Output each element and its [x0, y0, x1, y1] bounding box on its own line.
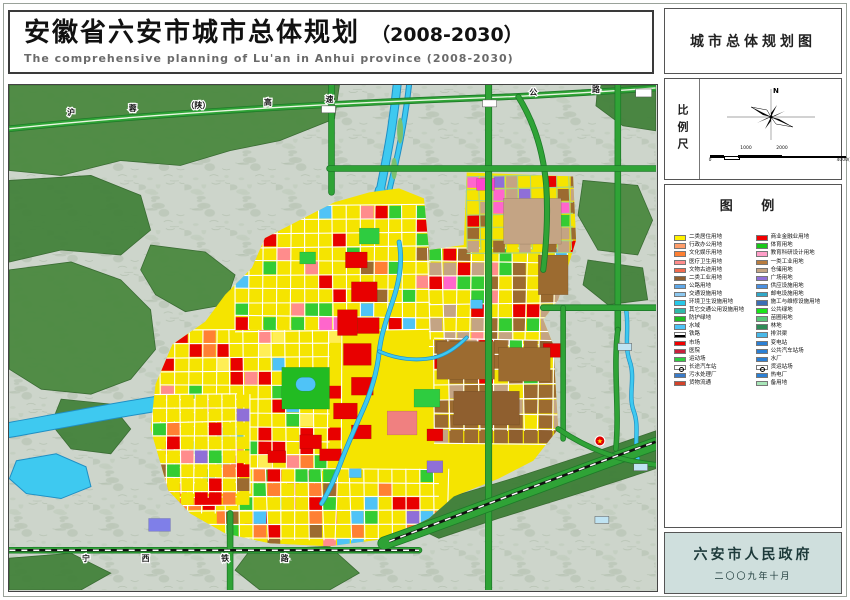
- legend-label: 长途汽车站: [689, 365, 717, 371]
- map-title: 城市总体规划图: [690, 31, 816, 51]
- legend-swatch: [674, 268, 686, 274]
- legend-swatch: [756, 341, 768, 347]
- legend-swatch: [674, 341, 686, 347]
- legend-item: 运动场: [674, 355, 752, 363]
- legend-label: 体育用地: [771, 243, 793, 249]
- road-label: 沪: [67, 107, 75, 117]
- legend-label: 公路用地: [689, 284, 711, 290]
- legend-swatch: [674, 260, 686, 266]
- road-label: 路: [592, 85, 601, 94]
- road-label: 宁: [82, 553, 90, 563]
- legend-label: 供应设施用地: [771, 284, 804, 290]
- legend-label: 公共汽车站场: [771, 349, 804, 355]
- legend-label: 公共绿地: [771, 308, 793, 314]
- legend-item: 二类工业用地: [674, 274, 752, 282]
- legend-label: 施工与维修设施用地: [771, 300, 821, 306]
- footer-org: 六安市人民政府: [694, 544, 813, 564]
- legend-item: 行政办公用地: [674, 242, 752, 250]
- legend-label: 水厂: [771, 357, 782, 363]
- legend-swatch: [674, 251, 686, 257]
- legend-swatch: [756, 251, 768, 257]
- legend-swatch: [756, 292, 768, 298]
- legend-swatch: [756, 324, 768, 330]
- legend-item: 商业金融业用地: [756, 234, 834, 242]
- legend-label: 运动场: [689, 357, 706, 363]
- legend-label: 行政办公用地: [689, 243, 722, 249]
- road-label: 蓉: [129, 103, 137, 113]
- legend-swatch: [756, 243, 768, 249]
- legend-label: 排洪渠: [771, 332, 788, 338]
- legend-item: 公路用地: [674, 283, 752, 291]
- sidebar: 城市总体规划图 比例尺: [664, 8, 842, 592]
- road-label: 路: [281, 553, 290, 563]
- legend-item: 医疗卫生用地: [674, 258, 752, 266]
- road-label: 西: [142, 554, 150, 563]
- legend-swatch: [674, 308, 686, 314]
- legend-swatch: [674, 243, 686, 249]
- legend-swatch: [674, 316, 686, 322]
- legend-swatch: [756, 365, 768, 371]
- legend-swatch: [756, 260, 768, 266]
- scale-tick: 1000: [740, 146, 751, 151]
- legend-item: 体育用地: [756, 242, 834, 250]
- legend-item: 其它交通公用设施用地: [674, 307, 752, 315]
- map-canvas: ★沪蓉（陕）高速公路宁西铁路: [9, 85, 656, 590]
- legend-label: 教育科研设计用地: [771, 251, 815, 257]
- scale-tick: 4000(M): [837, 158, 850, 163]
- legend-label: 医疗卫生用地: [689, 260, 722, 266]
- legend-label: 备用地: [771, 381, 788, 387]
- legend-label: 二类居住用地: [689, 235, 722, 241]
- legend-label: 文化娱乐用地: [689, 251, 722, 257]
- legend-swatch: [674, 284, 686, 290]
- legend-label: 商业金融业用地: [771, 235, 810, 241]
- scale-tick: 2000: [776, 146, 787, 151]
- title-zh-text: 安徽省六安市城市总体规划: [24, 18, 360, 48]
- legend-item: 市场: [674, 339, 752, 347]
- road-label: （陕）: [186, 100, 210, 110]
- legend-column-right: 商业金融业用地体育用地教育科研设计用地一类工业用地仓储用地广场用地供应设施用地邮…: [756, 234, 834, 388]
- legend-item: 水厂: [756, 355, 834, 363]
- legend-item: 货物流通: [674, 380, 752, 388]
- legend-swatch: [756, 284, 768, 290]
- legend-item: 交通设施用地: [674, 291, 752, 299]
- legend-label: 铁路: [689, 332, 700, 338]
- page: 安徽省六安市城市总体规划 （2008-2030） The comprehensi…: [0, 0, 850, 600]
- legend-swatch: [756, 349, 768, 355]
- legend-label: 其它交通公用设施用地: [689, 308, 744, 314]
- legend-item: 施工与维修设施用地: [756, 299, 834, 307]
- legend-columns: 二类居住用地行政办公用地文化娱乐用地医疗卫生用地文物古迹用地二类工业用地公路用地…: [665, 214, 841, 388]
- legend-swatch: [756, 316, 768, 322]
- legend-item: 货运站场: [756, 364, 834, 372]
- legend-label: 环境卫生设施用地: [689, 300, 733, 306]
- legend-swatch: [674, 276, 686, 282]
- legend-label: 交通设施用地: [689, 292, 722, 298]
- legend-item: 医院: [674, 347, 752, 355]
- legend-item: 一类工业用地: [756, 258, 834, 266]
- legend-label: 二类工业用地: [689, 276, 722, 282]
- legend-swatch: [674, 381, 686, 387]
- legend-item: 文物古迹用地: [674, 266, 752, 274]
- scale-body: N 0100020004000(M): [700, 79, 841, 179]
- legend-item: 公共绿地: [756, 307, 834, 315]
- legend-item: 二类居住用地: [674, 234, 752, 242]
- legend-swatch: [674, 292, 686, 298]
- legend-item: 污水处理厂: [674, 372, 752, 380]
- legend-swatch: [756, 276, 768, 282]
- legend-swatch: [756, 235, 768, 241]
- legend-label: 变电站: [771, 341, 788, 347]
- legend-swatch: [674, 365, 686, 371]
- legend-label: 货物流通: [689, 381, 711, 387]
- legend-swatch: [756, 300, 768, 306]
- legend-swatch: [756, 268, 768, 274]
- svg-text:★: ★: [597, 437, 603, 445]
- legend-label: 防护绿地: [689, 316, 711, 322]
- legend-label: 一类工业用地: [771, 260, 804, 266]
- legend-swatch: [756, 381, 768, 387]
- legend-item: 防护绿地: [674, 315, 752, 323]
- compass-rose: N: [725, 85, 817, 145]
- legend-swatch: [674, 300, 686, 306]
- legend-label: 邮电设施用地: [771, 292, 804, 298]
- title-year: （2008-2030）: [371, 24, 523, 46]
- legend-swatch: [674, 373, 686, 379]
- legend-item: 排洪渠: [756, 331, 834, 339]
- legend-swatch: [674, 235, 686, 241]
- legend-item: 供应设施用地: [756, 283, 834, 291]
- legend-label: 苗圃用地: [771, 316, 793, 322]
- legend-item: 铁路: [674, 331, 752, 339]
- legend-item: 公共汽车站场: [756, 347, 834, 355]
- footer-date: 二〇〇九年十月: [714, 569, 791, 582]
- legend-label: 广场用地: [771, 276, 793, 282]
- city-marker: ★: [595, 436, 605, 446]
- legend-item: 教育科研设计用地: [756, 250, 834, 258]
- footer-box: 六安市人民政府 二〇〇九年十月: [664, 532, 842, 594]
- page-title: 安徽省六安市城市总体规划 （2008-2030）: [24, 18, 642, 50]
- legend-swatch: [674, 324, 686, 330]
- scale-tick: 0: [709, 158, 712, 163]
- legend-label: 市场: [689, 341, 700, 347]
- legend-swatch: [756, 373, 768, 379]
- legend-swatch: [756, 357, 768, 363]
- legend-item: 备用地: [756, 380, 834, 388]
- legend-label: 水域: [689, 324, 700, 330]
- legend-label: 医院: [689, 349, 700, 355]
- legend-item: 长途汽车站: [674, 364, 752, 372]
- scale-bar: 0100020004000(M): [710, 147, 833, 163]
- legend-item: 邮电设施用地: [756, 291, 834, 299]
- title-block: 安徽省六安市城市总体规划 （2008-2030） The comprehensi…: [8, 10, 654, 74]
- legend-column-left: 二类居住用地行政办公用地文化娱乐用地医疗卫生用地文物古迹用地二类工业用地公路用地…: [674, 234, 752, 388]
- road-label: 铁: [221, 553, 229, 563]
- legend-item: 环境卫生设施用地: [674, 299, 752, 307]
- legend-label: 文物古迹用地: [689, 268, 722, 274]
- legend-item: 仓储用地: [756, 266, 834, 274]
- road-label: 公: [529, 88, 537, 97]
- map-title-box: 城市总体规划图: [664, 8, 842, 74]
- north-label-glyph: N: [773, 87, 779, 95]
- legend-swatch: [674, 332, 686, 338]
- legend-item: 变电站: [756, 339, 834, 347]
- legend-label: 污水处理厂: [689, 373, 717, 379]
- planning-map: ★沪蓉（陕）高速公路宁西铁路: [8, 84, 658, 592]
- road-label: 速: [326, 94, 334, 104]
- legend-label: 仓储用地: [771, 268, 793, 274]
- legend-item: 苗圃用地: [756, 315, 834, 323]
- legend-label: 热电厂: [771, 373, 788, 379]
- legend-label: 林地: [771, 324, 782, 330]
- legend-item: 水域: [674, 323, 752, 331]
- legend-label: 货运站场: [771, 365, 793, 371]
- legend-title: 图 例: [665, 195, 841, 214]
- scale-label-cell: 比例尺: [665, 79, 700, 179]
- legend-swatch: [756, 332, 768, 338]
- page-subtitle: The comprehensive planning of Lu'an in A…: [24, 52, 642, 65]
- road-label: 高: [264, 97, 272, 107]
- scale-label: 比例尺: [674, 104, 690, 155]
- legend-box: 图 例 二类居住用地行政办公用地文化娱乐用地医疗卫生用地文物古迹用地二类工业用地…: [664, 184, 842, 528]
- legend-swatch: [674, 357, 686, 363]
- legend-item: 林地: [756, 323, 834, 331]
- scale-box: 比例尺: [664, 78, 842, 180]
- legend-item: 热电厂: [756, 372, 834, 380]
- legend-item: 广场用地: [756, 274, 834, 282]
- legend-swatch: [674, 349, 686, 355]
- legend-item: 文化娱乐用地: [674, 250, 752, 258]
- legend-swatch: [756, 308, 768, 314]
